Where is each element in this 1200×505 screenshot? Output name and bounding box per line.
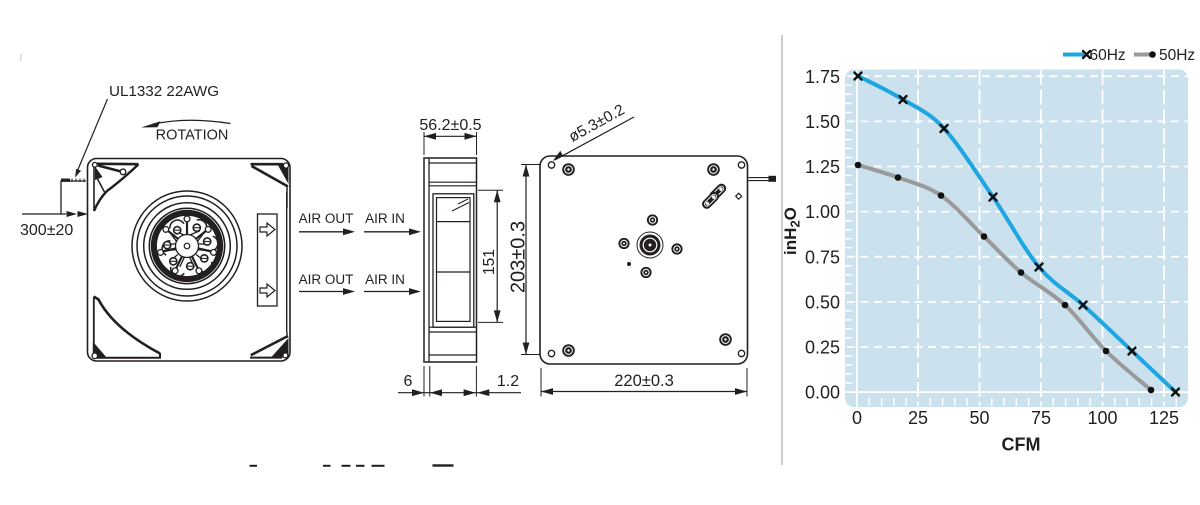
svg-text:25: 25 — [908, 408, 928, 428]
svg-text:1.75: 1.75 — [805, 67, 840, 87]
svg-text:1.00: 1.00 — [805, 202, 840, 222]
svg-text:60Hz: 60Hz — [1090, 47, 1126, 64]
svg-text:0.75: 0.75 — [805, 247, 840, 267]
svg-text:0.00: 0.00 — [805, 383, 840, 403]
svg-text:6: 6 — [404, 373, 413, 390]
svg-text:AIR IN: AIR IN — [365, 272, 405, 287]
svg-text:56.2±0.5: 56.2±0.5 — [419, 117, 481, 134]
svg-text:ROTATION: ROTATION — [156, 128, 229, 144]
svg-text:50: 50 — [969, 408, 989, 428]
svg-text:AIR OUT: AIR OUT — [299, 272, 354, 287]
svg-text:220±0.3: 220±0.3 — [614, 372, 674, 390]
svg-text:1.25: 1.25 — [805, 157, 840, 177]
svg-text:50Hz: 50Hz — [1159, 47, 1195, 64]
svg-text:151: 151 — [481, 249, 498, 275]
svg-text:203±0.3: 203±0.3 — [508, 221, 530, 293]
svg-text:100: 100 — [1087, 408, 1117, 428]
svg-text:AIR IN: AIR IN — [365, 211, 405, 226]
svg-text:0.25: 0.25 — [805, 338, 840, 358]
svg-text:0: 0 — [852, 408, 862, 428]
svg-text:UL1332 22AWG: UL1332 22AWG — [109, 83, 219, 100]
svg-text:75: 75 — [1031, 408, 1051, 428]
svg-text:125: 125 — [1149, 408, 1179, 428]
svg-text:1.2: 1.2 — [497, 373, 519, 390]
svg-text:inH2O: inH2O — [781, 207, 803, 255]
svg-text:1.50: 1.50 — [805, 112, 840, 132]
svg-text:CFM: CFM — [1002, 435, 1041, 455]
svg-text:300±20: 300±20 — [20, 222, 73, 239]
svg-text:0.50: 0.50 — [805, 293, 840, 313]
svg-text:AIR OUT: AIR OUT — [299, 211, 354, 226]
